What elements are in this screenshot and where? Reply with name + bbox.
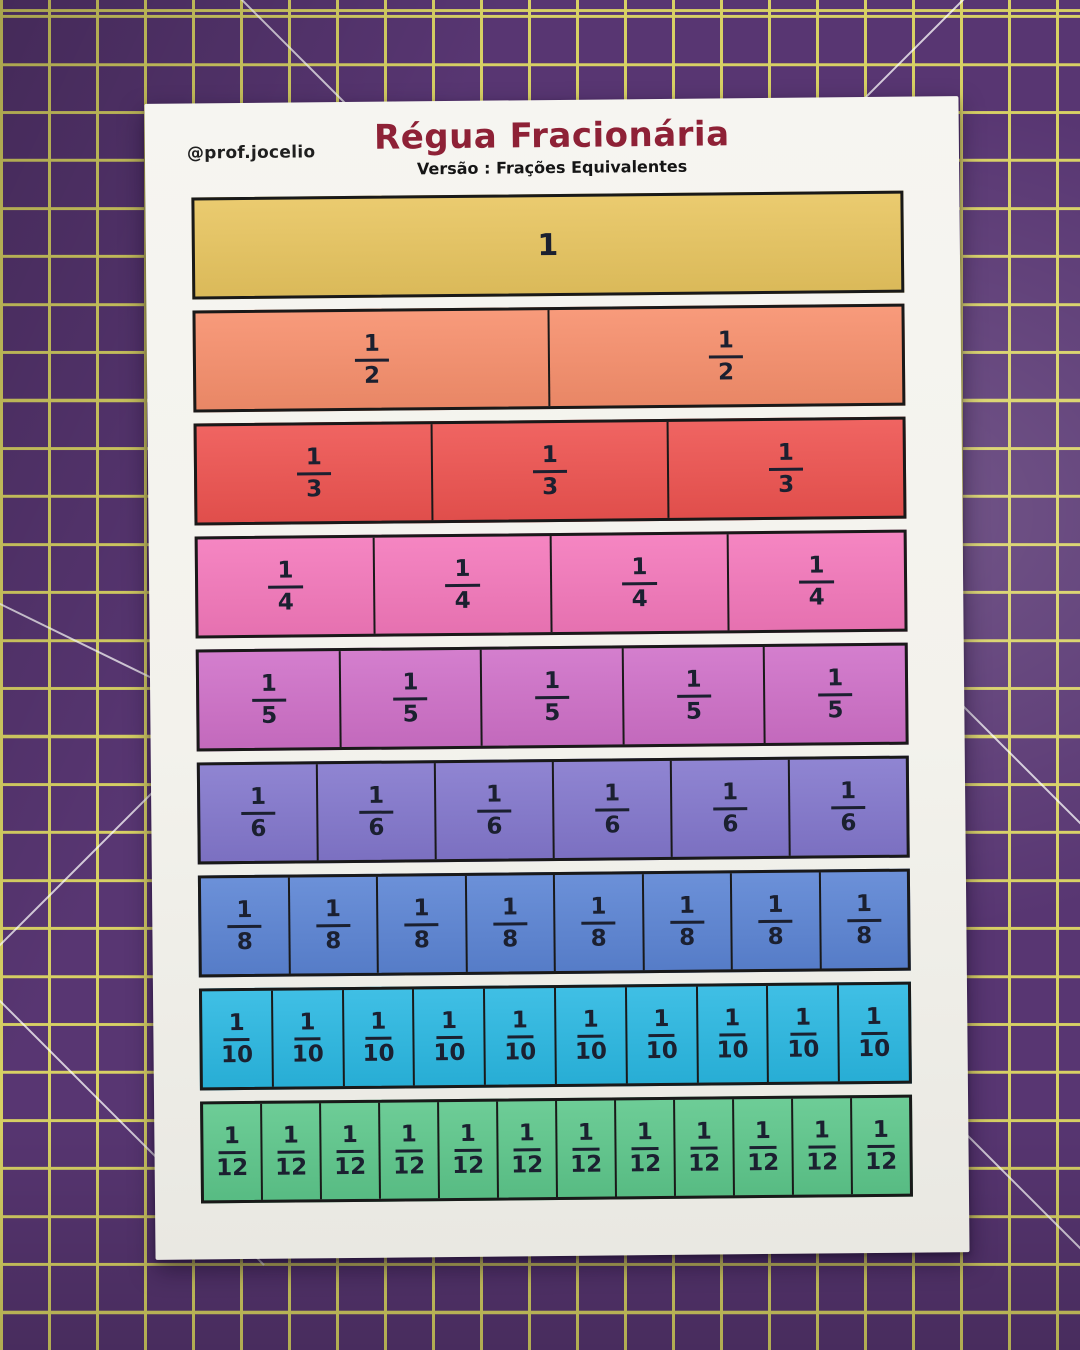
- fraction-label: 15: [535, 669, 570, 726]
- fraction-cell: 18: [555, 874, 644, 971]
- fraction-cell: 15: [340, 650, 483, 747]
- fraction-bars: 1121213131314141414151515151516161616161…: [191, 191, 913, 1215]
- fraction-row-3: 131313: [194, 417, 907, 526]
- fraction-label: 110: [504, 1008, 537, 1065]
- fraction-label: 12: [709, 328, 744, 385]
- fraction-label: 112: [216, 1124, 249, 1181]
- fraction-cell: 112: [675, 1099, 735, 1196]
- fraction-label: 14: [799, 553, 834, 610]
- fraction-cell: 14: [375, 536, 553, 634]
- fraction-label: 18: [493, 895, 528, 952]
- fraction-label: 112: [865, 1118, 898, 1175]
- fraction-label: 112: [688, 1119, 721, 1176]
- fraction-label: 110: [221, 1011, 254, 1068]
- fraction-label: 13: [769, 440, 804, 497]
- fraction-label: 18: [227, 898, 262, 955]
- fraction-label: 110: [575, 1007, 608, 1064]
- fraction-label: 15: [818, 666, 853, 723]
- fraction-label: 110: [645, 1007, 678, 1064]
- fraction-cell: 16: [318, 763, 437, 860]
- fraction-row-6: 161616161616: [197, 756, 910, 865]
- fraction-cell: 112: [439, 1102, 499, 1199]
- fraction-cell: 112: [380, 1102, 440, 1199]
- fraction-cell: 18: [201, 878, 290, 975]
- fraction-cell: 16: [554, 761, 673, 858]
- fraction-cell: 110: [627, 987, 699, 1084]
- fraction-label: 112: [452, 1122, 485, 1179]
- fraction-label: 112: [511, 1121, 544, 1178]
- fraction-label: 15: [252, 671, 287, 728]
- fraction-row-8: 1818181818181818: [198, 869, 911, 978]
- fraction-cell: 112: [203, 1104, 263, 1201]
- fraction-cell: 15: [623, 647, 766, 744]
- fraction-cell: 110: [556, 987, 628, 1084]
- fraction-cell: 112: [321, 1103, 381, 1200]
- whole-number-label: 1: [537, 227, 558, 262]
- fraction-row-2: 1212: [192, 304, 905, 413]
- fraction-cell: 110: [485, 988, 557, 1085]
- page-title: Régua Fracionária: [145, 112, 959, 160]
- fraction-cell: 18: [732, 872, 821, 969]
- fraction-cell: 112: [262, 1103, 322, 1200]
- fraction-cell: 16: [790, 759, 907, 856]
- fraction-label: 110: [787, 1005, 820, 1062]
- fraction-cell: 13: [197, 424, 434, 522]
- fraction-label: 13: [533, 443, 568, 500]
- fraction-cell: 15: [482, 648, 625, 745]
- fraction-label: 16: [477, 782, 512, 839]
- fraction-cell: 13: [433, 422, 670, 520]
- fraction-label: 13: [297, 445, 332, 502]
- fraction-cell: 112: [734, 1099, 794, 1196]
- fraction-label: 12: [355, 331, 390, 388]
- fraction-label: 18: [404, 896, 439, 953]
- fraction-label: 14: [622, 555, 657, 612]
- fraction-label: 110: [362, 1009, 395, 1066]
- fraction-cell: 112: [557, 1100, 617, 1197]
- fraction-cell: 110: [839, 985, 909, 1082]
- fraction-cell: 110: [273, 990, 345, 1087]
- fraction-row-10: 110110110110110110110110110110: [199, 982, 912, 1091]
- fraction-cell: 14: [552, 534, 730, 632]
- fraction-label: 112: [393, 1122, 426, 1179]
- fraction-label: 110: [716, 1006, 749, 1063]
- fraction-label: 110: [433, 1009, 466, 1066]
- fraction-label: 110: [291, 1010, 324, 1067]
- fraction-label: 15: [676, 667, 711, 724]
- fraction-label: 16: [713, 780, 748, 837]
- photo-scene: @prof.jocelio Régua Fracionária Versão :…: [0, 0, 1080, 1350]
- fraction-cell: 18: [466, 875, 555, 972]
- fraction-label: 18: [316, 897, 351, 954]
- fraction-label: 112: [629, 1120, 662, 1177]
- fraction-label: 112: [747, 1119, 780, 1176]
- fraction-label: 16: [359, 783, 394, 840]
- fraction-label: 14: [445, 557, 480, 614]
- fraction-row-5: 1515151515: [196, 643, 909, 752]
- fraction-label: 112: [806, 1118, 839, 1175]
- fraction-cell: 18: [378, 876, 467, 973]
- fraction-cell: 110: [414, 989, 486, 1086]
- fraction-cell: 18: [289, 877, 378, 974]
- fraction-row-4: 14141414: [195, 530, 908, 639]
- fraction-label: 18: [670, 893, 705, 950]
- fraction-cell: 16: [436, 762, 555, 859]
- fraction-cell: 12: [195, 310, 550, 409]
- fraction-label: 112: [570, 1120, 603, 1177]
- fraction-cell: 15: [765, 646, 906, 743]
- fraction-cell: 18: [820, 872, 907, 969]
- fraction-cell: 110: [768, 985, 840, 1082]
- fraction-cell: 112: [793, 1098, 853, 1195]
- fraction-cell: 13: [669, 420, 904, 518]
- fraction-cell: 12: [549, 307, 902, 406]
- fraction-cell: 18: [643, 873, 732, 970]
- fraction-label: 18: [847, 892, 882, 949]
- fraction-cell: 1: [194, 194, 901, 297]
- fraction-cell: 112: [498, 1101, 558, 1198]
- fraction-label: 16: [831, 779, 866, 836]
- fraction-label: 14: [268, 558, 303, 615]
- fraction-label: 18: [581, 894, 616, 951]
- fraction-cell: 14: [198, 538, 376, 636]
- fraction-cell: 110: [202, 991, 274, 1088]
- fraction-label: 112: [334, 1123, 367, 1180]
- fraction-label: 16: [595, 781, 630, 838]
- fraction-label: 16: [241, 785, 276, 842]
- fraction-label: 110: [858, 1005, 891, 1062]
- fraction-cell: 110: [698, 986, 770, 1083]
- fraction-label: 18: [758, 893, 793, 950]
- fraction-cell: 16: [672, 760, 791, 857]
- fraction-row-12: 112112112112112112112112112112112112: [200, 1095, 913, 1204]
- fraction-cell: 15: [199, 651, 342, 748]
- worksheet-paper: @prof.jocelio Régua Fracionária Versão :…: [144, 96, 969, 1260]
- fraction-cell: 112: [616, 1100, 676, 1197]
- fraction-row-whole: 1: [191, 191, 904, 300]
- fraction-cell: 110: [344, 989, 416, 1086]
- fraction-cell: 16: [200, 764, 319, 861]
- fraction-label: 15: [393, 670, 428, 727]
- fraction-label: 112: [275, 1123, 308, 1180]
- fraction-cell: 112: [852, 1098, 910, 1195]
- fraction-cell: 14: [729, 533, 905, 631]
